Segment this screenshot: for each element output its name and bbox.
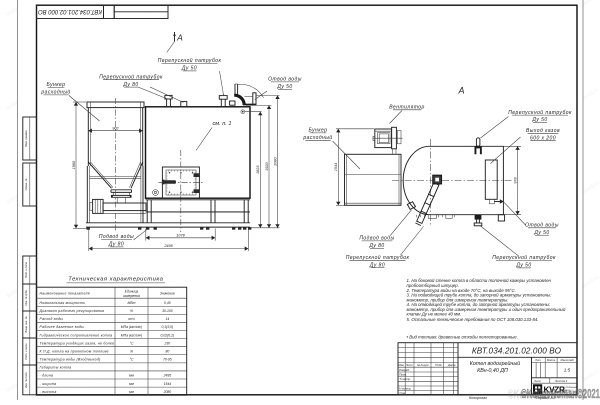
svg-text:МВт: МВт bbox=[128, 301, 136, 305]
svg-text:Т.контр.: Т.контр. bbox=[399, 377, 411, 381]
svg-text:Наименование показателя: Наименование показателя bbox=[40, 292, 90, 296]
svg-text:Н.контр.: Н.контр. bbox=[399, 387, 411, 391]
svg-text:1823: 1823 bbox=[256, 165, 260, 174]
svg-text:- длина: - длина bbox=[40, 374, 54, 378]
svg-text:Перепускной патрубок: Перепускной патрубок bbox=[508, 109, 572, 116]
svg-text:70-95: 70-95 bbox=[163, 358, 172, 362]
svg-text:Температура уходящих газов, не: Температура уходящих газов, не более bbox=[40, 341, 115, 345]
svg-text:Лит.: Лит. bbox=[534, 358, 542, 362]
svg-text:см. п. 1: см. п. 1 bbox=[212, 121, 231, 127]
svg-text:Подп.: Подп. bbox=[435, 363, 443, 367]
svg-text:мм: мм bbox=[129, 374, 134, 378]
svg-text:1920: 1920 bbox=[265, 161, 269, 170]
svg-text:измерения: измерения bbox=[123, 294, 140, 298]
svg-text:0,3(3,0): 0,3(3,0) bbox=[162, 325, 174, 329]
svg-text:©KotlovRoman©2021: ©KotlovRoman©2021 bbox=[508, 387, 587, 401]
svg-text:Лист: Лист bbox=[533, 379, 542, 383]
svg-text:978: 978 bbox=[513, 176, 517, 183]
svg-text:Справ. №: Справ. № bbox=[24, 178, 28, 190]
svg-text:Номинальная мощность: Номинальная мощность bbox=[40, 301, 86, 305]
svg-text:№ докум.: № докум. bbox=[417, 363, 430, 367]
svg-text:0,02(0,2): 0,02(0,2) bbox=[161, 333, 175, 337]
svg-text:МПа (кгс/см²): МПа (кгс/см²) bbox=[121, 325, 142, 329]
svg-text:14: 14 bbox=[165, 317, 169, 321]
svg-text:Изм.: Изм. bbox=[399, 363, 405, 367]
svg-text:1:5: 1:5 bbox=[564, 368, 571, 373]
svg-text:мм: мм bbox=[129, 390, 134, 394]
svg-text:- высота: - высота bbox=[40, 390, 57, 394]
svg-text:А: А bbox=[176, 33, 183, 43]
svg-text:1544: 1544 bbox=[334, 163, 338, 171]
svg-text:2495: 2495 bbox=[163, 244, 173, 248]
svg-text:расходный: расходный bbox=[40, 89, 70, 96]
svg-text:%: % bbox=[130, 349, 133, 353]
svg-text:Температура воды (Вход/выход): Температура воды (Вход/выход) bbox=[40, 358, 101, 362]
svg-text:- ширина: - ширина bbox=[40, 382, 57, 386]
svg-text:Разраб.: Разраб. bbox=[399, 368, 410, 372]
svg-text:Перепускной патрубок: Перепускной патрубок bbox=[346, 254, 410, 261]
svg-text:Инв. № подл.: Инв. № подл. bbox=[24, 372, 28, 388]
svg-text:902: 902 bbox=[112, 126, 119, 130]
svg-text:Лист: Лист bbox=[405, 363, 414, 367]
svg-text:Гидравлическое сопротивление к: Гидравлическое сопротивление котла bbox=[40, 333, 113, 337]
svg-text:30-100: 30-100 bbox=[162, 309, 173, 313]
svg-text:м³/ч: м³/ч bbox=[128, 317, 134, 321]
svg-text:Рабочее давление воды: Рабочее давление воды bbox=[40, 325, 85, 329]
svg-text:А: А bbox=[457, 86, 464, 96]
svg-text:Перепускной патрубок: Перепускной патрубок bbox=[492, 254, 556, 261]
svg-text:Инв. № дубл.: Инв. № дубл. bbox=[24, 289, 28, 305]
svg-text:Значение: Значение bbox=[160, 292, 175, 296]
svg-text:Листов 1: Листов 1 bbox=[554, 379, 568, 383]
svg-text:Перепускной патрубок: Перепускной патрубок bbox=[99, 73, 163, 80]
svg-text:Котел водогрейный: Котел водогрейный bbox=[470, 360, 520, 367]
svg-text:мм: мм bbox=[129, 382, 134, 386]
svg-text:Диапазон рабочего регулировани: Диапазон рабочего регулирования bbox=[39, 309, 105, 313]
svg-text:Перв. примен.: Перв. примен. bbox=[24, 130, 28, 148]
svg-text:°С: °С bbox=[130, 358, 134, 362]
svg-text:1960: 1960 bbox=[72, 160, 76, 169]
svg-text:2080: 2080 bbox=[163, 390, 172, 394]
svg-text:2080: 2080 bbox=[273, 156, 277, 166]
svg-text:КВн-0,40 ДП: КВн-0,40 ДП bbox=[477, 368, 508, 374]
svg-text:Техническая характеристика: Техническая характеристика bbox=[68, 277, 163, 283]
svg-text:Расход воды: Расход воды bbox=[40, 317, 64, 321]
svg-text:°С: °С bbox=[130, 341, 134, 345]
svg-text:КВТ.034.201.02.000 ВО: КВТ.034.201.02.000 ВО bbox=[38, 8, 102, 14]
svg-text:Масса: Масса bbox=[547, 358, 556, 362]
svg-text:Утв.: Утв. bbox=[399, 391, 406, 395]
svg-text:1078: 1078 bbox=[176, 233, 185, 237]
svg-text:МПа (кгс/см²): МПа (кгс/см²) bbox=[121, 333, 142, 337]
svg-text:Габариты котла: Габариты котла bbox=[40, 366, 72, 370]
svg-text:К.П.Д. котла на проектном топл: К.П.Д. котла на проектном топливе bbox=[40, 349, 109, 353]
svg-text:Пров.: Пров. bbox=[399, 373, 407, 377]
svg-text:Дата: Дата bbox=[447, 363, 456, 367]
svg-text:0,40: 0,40 bbox=[164, 301, 171, 305]
svg-text:расходный: расходный bbox=[302, 134, 332, 141]
svg-text:Масштаб: Масштаб bbox=[560, 358, 573, 362]
svg-text:230: 230 bbox=[164, 341, 171, 345]
svg-text:КВТ.034.201.02.000 ВО: КВТ.034.201.02.000 ВО bbox=[472, 347, 562, 356]
svg-text:Перепускной патрубок: Перепускной патрубок bbox=[158, 57, 222, 64]
svg-text:Взам. инв. №: Взам. инв. № bbox=[24, 316, 28, 332]
svg-text:Единица: Единица bbox=[125, 289, 139, 293]
svg-text:80: 80 bbox=[165, 349, 169, 353]
svg-text:2495: 2495 bbox=[163, 374, 172, 378]
svg-text:Копировал: Копировал bbox=[469, 396, 487, 400]
svg-text:Подп. и дата: Подп. и дата bbox=[24, 343, 28, 360]
svg-text:• Вид топлива: древесные отх: • Вид топлива: древесные отходы пеллетир… bbox=[407, 334, 518, 339]
svg-text:1544: 1544 bbox=[164, 382, 172, 386]
svg-text:5. Остальные технические треб: 5. Остальные технические требования по О… bbox=[407, 317, 539, 322]
svg-text:%: % bbox=[130, 309, 133, 313]
svg-text:Подп. и дата: Подп. и дата bbox=[24, 261, 28, 278]
svg-text:клапан Ду не менее 40 мм.: клапан Ду не менее 40 мм. bbox=[407, 312, 462, 317]
